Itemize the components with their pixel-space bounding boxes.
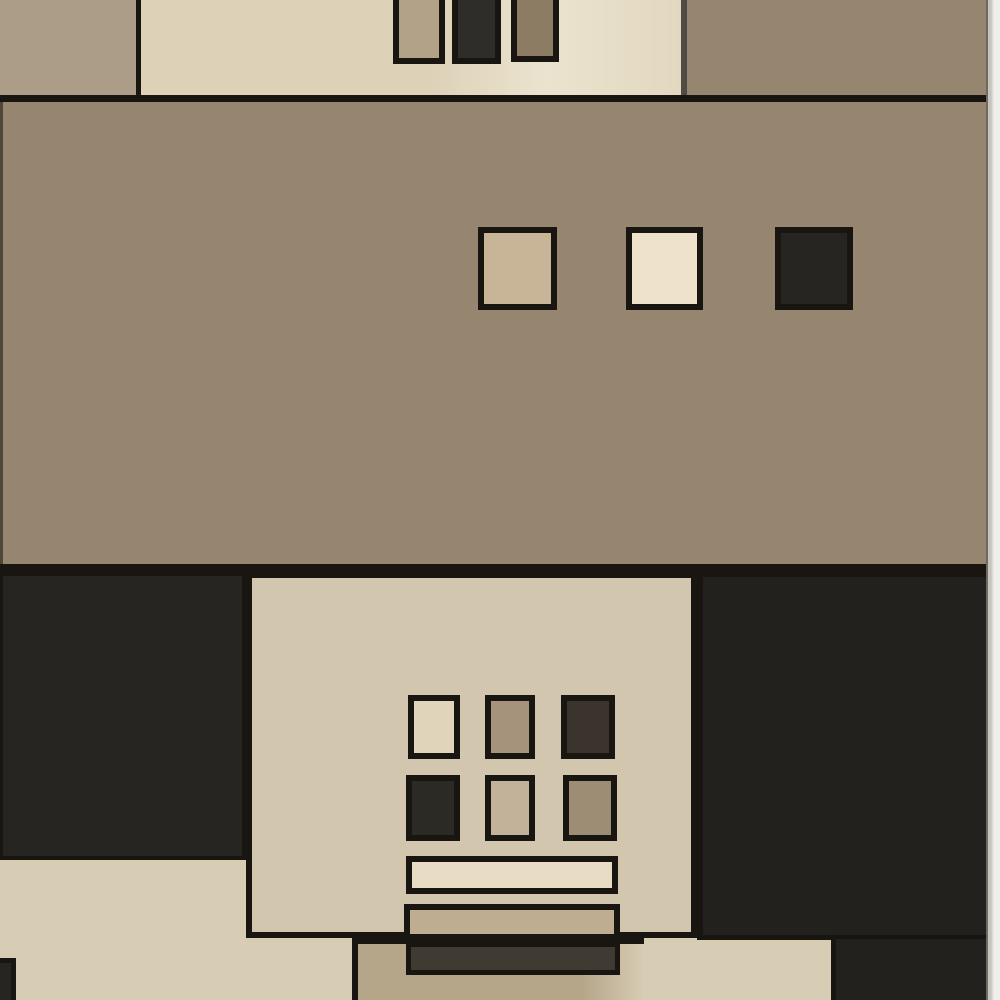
bottom-left-mini-square	[0, 958, 16, 1000]
panel-square-tan	[485, 775, 535, 841]
panel-square-charcoal	[406, 775, 460, 841]
bottom-right-charcoal-block	[831, 935, 986, 1000]
top-small-rect-brown	[511, 0, 559, 62]
middle-square-dark	[775, 227, 853, 310]
panel-square-cream	[408, 695, 460, 759]
divider-line-middle	[0, 564, 986, 572]
panel-tan-bar	[404, 904, 620, 940]
panel-square-dark-brown	[561, 695, 615, 759]
bottom-left-charcoal-block	[0, 572, 246, 860]
right-charcoal-block	[697, 572, 986, 940]
top-left-tan-block	[0, 0, 141, 95]
middle-square-tan	[478, 227, 557, 310]
panel-square-taupe	[485, 695, 535, 759]
divider-line-top	[0, 95, 986, 102]
top-right-brown-block	[687, 0, 986, 95]
top-small-rect-dark	[452, 0, 501, 64]
top-small-rect-tan	[393, 0, 445, 64]
panel-cream-bar	[406, 856, 618, 894]
bottom-dark-bar	[406, 942, 620, 975]
rug	[0, 0, 986, 1000]
panel-square-taupe-dark	[563, 775, 617, 841]
rug-product-photo	[0, 0, 1000, 1000]
photo-background-edge	[986, 0, 1000, 1000]
middle-brown-band	[0, 102, 986, 564]
middle-square-cream	[626, 227, 703, 310]
